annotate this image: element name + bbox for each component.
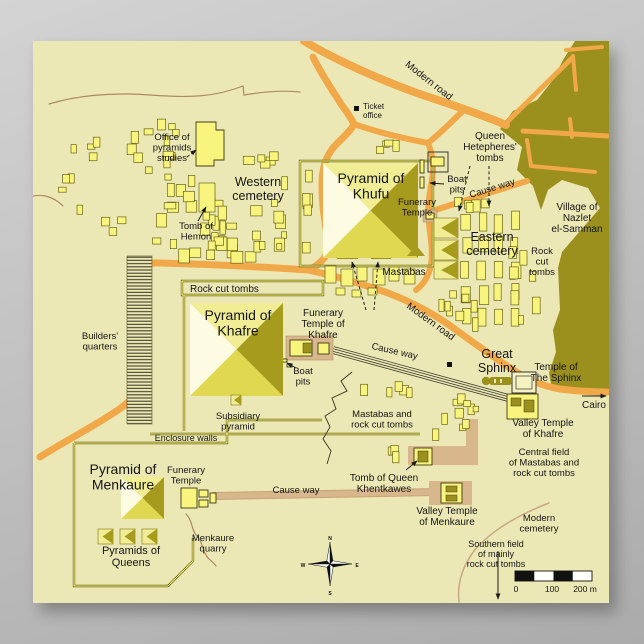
label-mastabas: Mastabas — [382, 267, 425, 278]
label-pyramid-of-menkaure: Pyramid ofMenkaure — [90, 461, 157, 492]
label-builders-quarters: Builders'quarters — [82, 331, 118, 352]
label-boat-pits-khafre: Boatpits — [293, 366, 313, 387]
compass-letter-w: W — [301, 563, 306, 569]
label-funerary-temple-menkaure: FuneraryTemple — [167, 465, 205, 486]
label-office-of-pyramids-studies: Office ofpyramidsstudies — [153, 132, 192, 164]
label-tomb-of-hemon: Tomb ofHemon — [179, 221, 213, 242]
label-ticket-office: Ticketoffice — [363, 102, 385, 120]
giza-map-svg: Office ofpyramidsstudiesWesterncemeteryT… — [33, 41, 609, 603]
ticket-office-marker — [354, 106, 359, 111]
boat-pit-slit — [420, 160, 424, 173]
builders-quarters-area — [127, 256, 152, 424]
boat-pit-slit — [420, 177, 424, 188]
map-poster: Office ofpyramidsstudiesWesterncemeteryT… — [33, 41, 609, 603]
compass-letter-n: N — [328, 536, 332, 542]
label-rock-cut-tombs-strip: Rock cut tombs — [190, 284, 259, 295]
label-mastabas-rock-cut: Mastabas androck cut tombs — [351, 409, 413, 430]
label-funerary-temple-khufu: FuneraryTemple — [398, 197, 436, 218]
scale-bar — [515, 571, 592, 581]
label-scale-100: 100 — [545, 584, 559, 594]
great-sphinx-glyph — [482, 377, 512, 385]
label-tomb-of-queen-khentkawes: Tomb of QueenKhentkawes — [350, 473, 418, 495]
label-enclosure-walls: Enclosure walls — [155, 433, 218, 443]
menkaure-funerary-temple — [181, 488, 197, 508]
label-eastern-cemetery: Easterncemetery — [466, 230, 518, 258]
label-valley-temple-menkaure: Valley Templeof Menkaure — [416, 506, 478, 528]
label-modern-cemetery: Moderncemetery — [519, 513, 558, 534]
label-boat-pits-ne: Boatpits — [447, 174, 467, 195]
label-scale-0: 0 — [514, 584, 519, 594]
black-square-marker — [447, 362, 452, 367]
label-temple-of-the-sphinx: Temple ofThe Sphinx — [531, 362, 582, 384]
label-subsidiary-pyramid: Subsidiarypyramid — [216, 411, 261, 432]
label-scale-200: 200 m — [573, 584, 597, 594]
label-causeway-menkaure: Cause way — [273, 485, 320, 496]
label-western-cemetery: Westerncemetery — [232, 175, 284, 203]
label-great-sphinx: GreatSphinx — [478, 347, 517, 375]
label-central-field: Central fieldof Mastabas androck cut tom… — [509, 447, 579, 479]
label-cairo: Cairo — [582, 400, 606, 411]
